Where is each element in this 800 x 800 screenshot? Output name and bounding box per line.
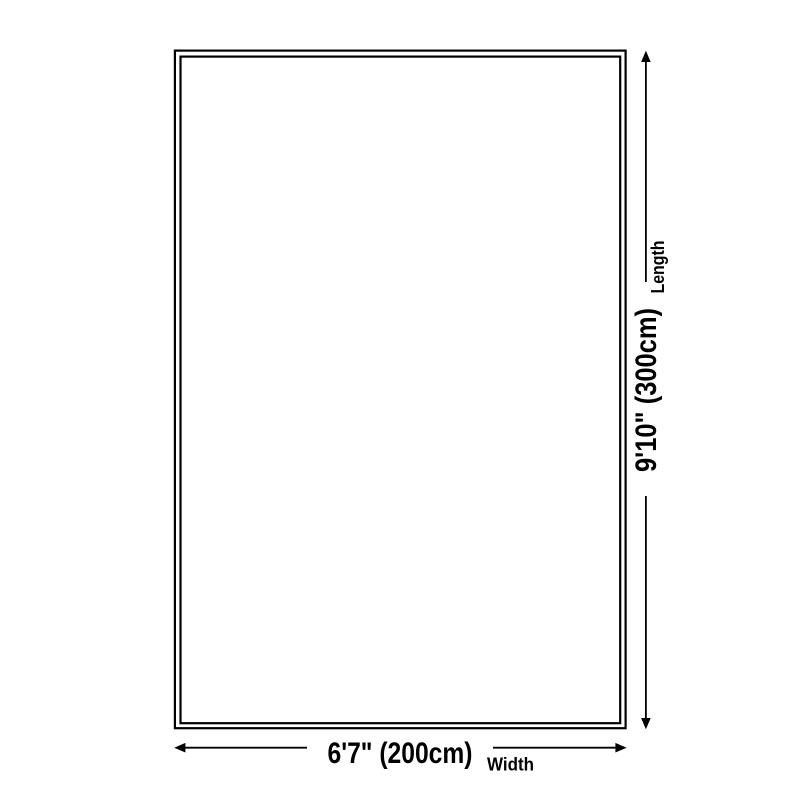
svg-text:Length: Length <box>648 241 668 294</box>
svg-text:Width: Width <box>487 755 534 775</box>
svg-text:6'7" (200cm): 6'7" (200cm) <box>328 737 473 770</box>
svg-text:9'10" (300cm): 9'10" (300cm) <box>630 308 663 472</box>
